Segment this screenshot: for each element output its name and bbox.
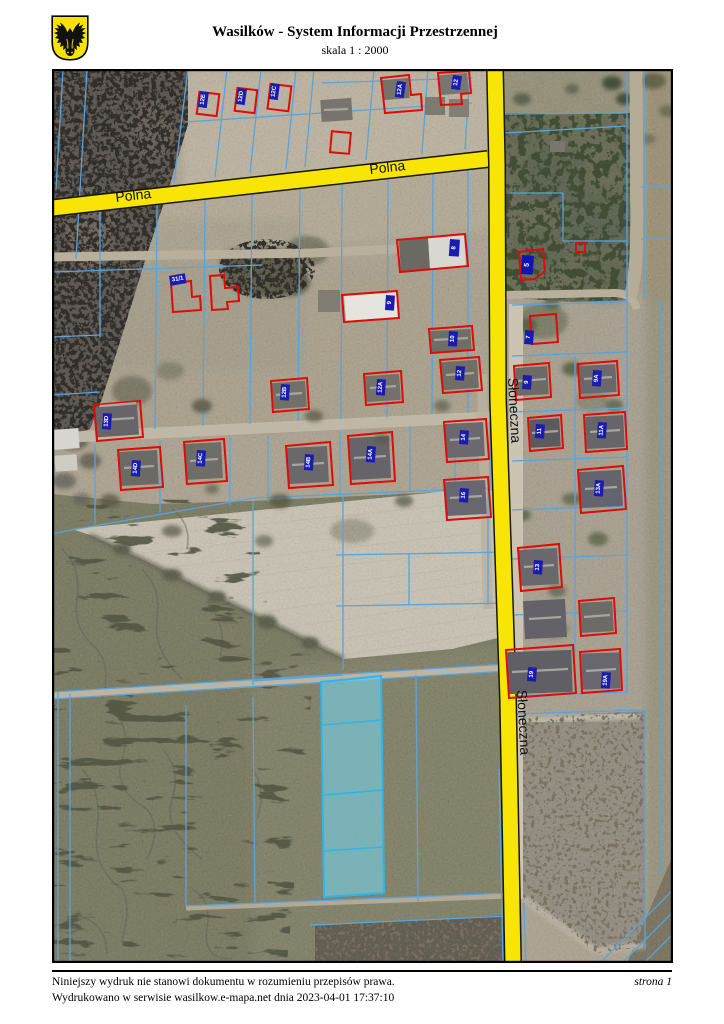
svg-text:14D: 14D <box>133 462 140 474</box>
svg-text:16: 16 <box>461 491 467 499</box>
svg-text:12B: 12B <box>282 386 289 398</box>
svg-text:11A: 11A <box>599 424 606 436</box>
svg-text:9A: 9A <box>594 374 601 383</box>
svg-text:14C: 14C <box>198 452 205 464</box>
svg-text:Słoneczna: Słoneczna <box>505 377 524 443</box>
svg-text:5: 5 <box>524 263 531 267</box>
svg-text:14: 14 <box>461 433 467 441</box>
svg-text:12: 12 <box>457 369 463 377</box>
svg-text:19A: 19A <box>603 674 610 686</box>
svg-text:14A: 14A <box>368 448 375 460</box>
svg-text:14B: 14B <box>306 456 313 468</box>
svg-text:13D: 13D <box>104 415 111 427</box>
svg-text:11: 11 <box>537 427 543 434</box>
svg-text:13A: 13A <box>596 482 603 494</box>
svg-text:13: 13 <box>535 563 541 571</box>
svg-text:Słoneczna: Słoneczna <box>514 689 533 755</box>
svg-text:12A: 12A <box>378 381 385 393</box>
svg-text:10: 10 <box>450 335 456 343</box>
svg-text:19: 19 <box>529 670 535 678</box>
